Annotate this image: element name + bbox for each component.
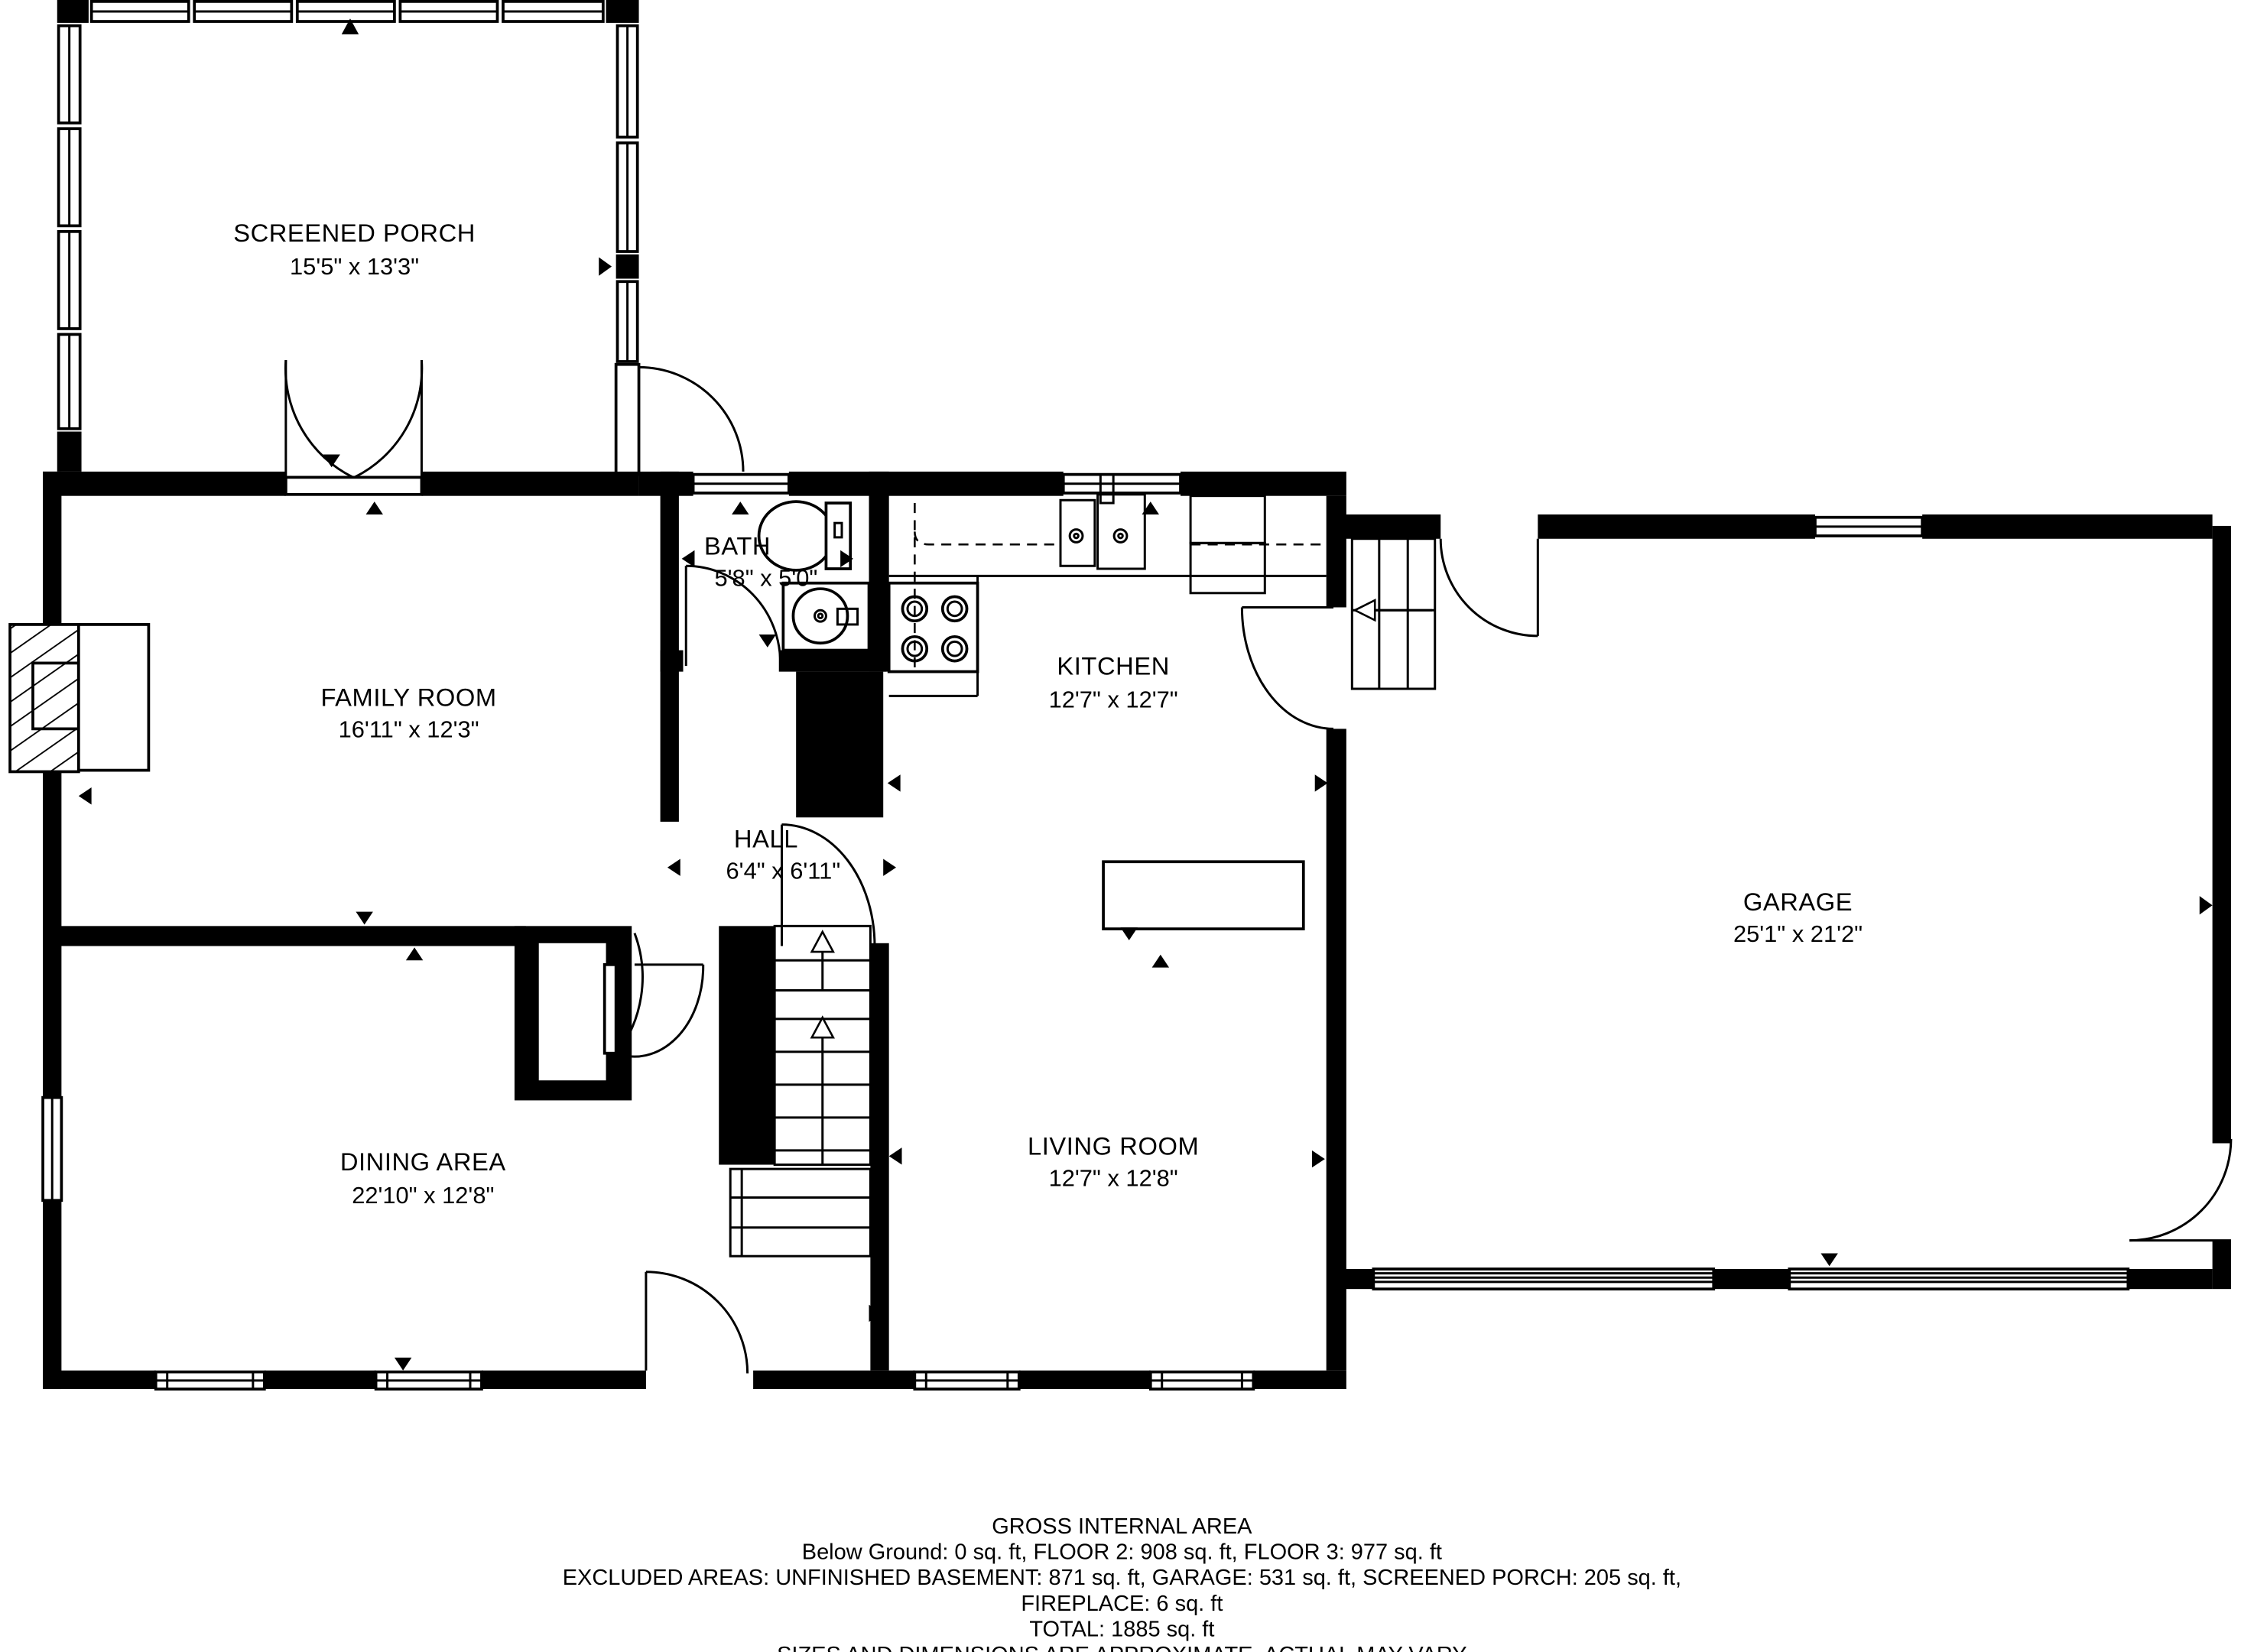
porch-wall-segment bbox=[57, 432, 82, 472]
dimension-marker bbox=[79, 787, 92, 804]
area-line-fireplace: FIREPLACE: 6 sq. ft bbox=[1021, 1592, 1223, 1616]
area-line-excluded: EXCLUDED AREAS: UNFINISHED BASEMENT: 871… bbox=[563, 1566, 1681, 1590]
dims-screened-porch: 15'5" x 13'3" bbox=[290, 253, 419, 280]
garage-entry-steps bbox=[1352, 539, 1434, 689]
dims-family-room: 16'11" x 12'3" bbox=[339, 716, 479, 743]
dims-bath: 5'8" x 5'0" bbox=[715, 564, 818, 591]
label-bath: BATH bbox=[704, 531, 771, 560]
stove bbox=[889, 583, 978, 672]
dimension-marker bbox=[599, 257, 612, 275]
steps-down-arrow bbox=[1355, 600, 1375, 620]
kitchen-peninsula bbox=[1103, 862, 1304, 929]
kitchen-garage-door bbox=[1242, 607, 1333, 729]
porch-corner-post bbox=[606, 0, 639, 23]
dining-window-left-wall bbox=[43, 1098, 61, 1201]
dims-kitchen: 12'7" x 12'7" bbox=[1049, 686, 1178, 712]
french-doors-porch bbox=[285, 360, 421, 495]
porch-back-door bbox=[616, 365, 743, 475]
label-living-room: LIVING ROOM bbox=[1028, 1131, 1199, 1160]
living-window-1 bbox=[914, 1372, 1018, 1389]
gross-internal-area-title: GROSS INTERNAL AREA bbox=[992, 1514, 1252, 1539]
dims-living-room: 12'7" x 12'8" bbox=[1049, 1165, 1178, 1192]
dining-window-2 bbox=[376, 1372, 482, 1389]
area-line-total: TOTAL: 1885 sq. ft bbox=[1029, 1617, 1214, 1641]
walls bbox=[43, 472, 2231, 1389]
area-disclaimer: SIZES AND DIMENSIONS ARE APPROXIMATE, AC… bbox=[777, 1643, 1467, 1652]
dims-garage: 25'1" x 21'2" bbox=[1733, 920, 1863, 947]
front-door bbox=[646, 1272, 748, 1374]
dims-dining-area: 22'10" x 12'8" bbox=[352, 1182, 494, 1209]
label-screened-porch: SCREENED PORCH bbox=[233, 219, 476, 247]
garage-rear-door bbox=[2129, 1139, 2231, 1241]
label-family-room: FAMILY ROOM bbox=[320, 683, 496, 711]
stairs bbox=[719, 926, 870, 1256]
porch-screen-panels-left bbox=[59, 26, 80, 429]
basement-steps bbox=[730, 1169, 870, 1256]
stairs-up-arrow bbox=[812, 1017, 833, 1037]
garage-door-1 bbox=[1373, 1269, 1713, 1289]
room-labels: SCREENED PORCH 15'5" x 13'3" FAMILY ROOM… bbox=[233, 219, 1863, 1209]
closet bbox=[515, 926, 703, 1100]
label-garage: GARAGE bbox=[1743, 888, 1853, 916]
stairs-up-arrow bbox=[812, 932, 833, 952]
label-hall: HALL bbox=[734, 825, 798, 853]
area-summary: GROSS INTERNAL AREA Below Ground: 0 sq. … bbox=[563, 1514, 1681, 1652]
kitchen-window bbox=[1064, 475, 1181, 493]
hearth bbox=[79, 625, 149, 771]
label-dining-area: DINING AREA bbox=[340, 1147, 506, 1176]
garage-door-2 bbox=[1789, 1269, 2128, 1289]
garage-side-door bbox=[1440, 539, 1538, 636]
closet-door-leaf bbox=[605, 965, 616, 1053]
porch-screen-panels-top bbox=[92, 2, 603, 21]
label-kitchen: KITCHEN bbox=[1057, 651, 1169, 680]
area-line-floors: Below Ground: 0 sq. ft, FLOOR 2: 908 sq.… bbox=[802, 1540, 1442, 1564]
porch-corner-post bbox=[57, 0, 89, 23]
dining-window-1 bbox=[156, 1372, 265, 1389]
living-window-2 bbox=[1151, 1372, 1254, 1389]
toilet bbox=[759, 501, 851, 570]
upper-cabinets-dashed bbox=[914, 531, 1060, 544]
floor-plan: SCREENED PORCH 15'5" x 13'3" FAMILY ROOM… bbox=[0, 0, 2241, 1652]
porch-screen-panels-right bbox=[616, 26, 639, 362]
fireplace bbox=[10, 625, 148, 805]
dims-hall: 6'4" x 6'11" bbox=[726, 858, 841, 884]
bath-vanity bbox=[783, 583, 869, 651]
bath-window bbox=[693, 475, 789, 493]
garage-window bbox=[1815, 518, 1922, 536]
